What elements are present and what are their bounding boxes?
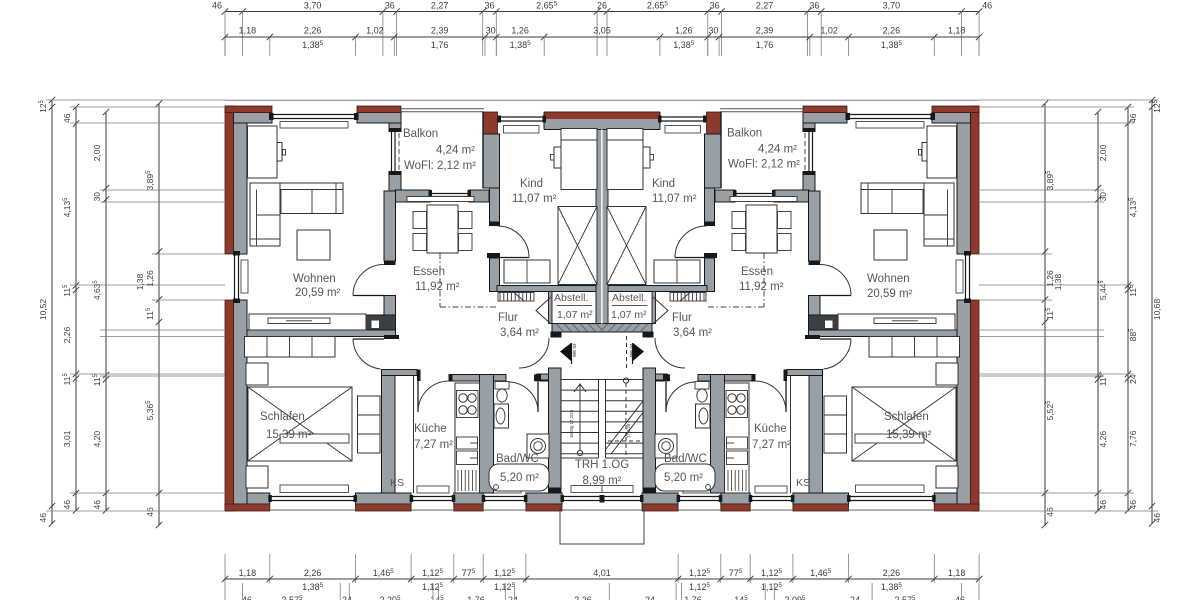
svg-text:20,59 m²: 20,59 m² <box>867 288 913 300</box>
svg-text:2,00: 2,00 <box>1098 144 1108 161</box>
svg-text:1,76: 1,76 <box>431 40 449 50</box>
svg-text:4,24 m²: 4,24 m² <box>758 144 797 156</box>
svg-text:Essen: Essen <box>413 266 445 278</box>
svg-text:Flur: Flur <box>498 312 518 324</box>
svg-text:2,26: 2,26 <box>883 568 901 578</box>
svg-text:30: 30 <box>1098 192 1108 202</box>
svg-text:Kind: Kind <box>652 178 675 190</box>
svg-text:Wohnen: Wohnen <box>867 273 910 285</box>
svg-text:36: 36 <box>710 1 720 11</box>
svg-text:145: 145 <box>430 595 444 600</box>
svg-text:2,27: 2,27 <box>431 1 449 11</box>
svg-text:4,24 m²: 4,24 m² <box>436 145 475 157</box>
svg-text:2,205: 2,205 <box>379 595 401 600</box>
svg-text:1,02: 1,02 <box>820 26 838 36</box>
svg-text:2,26: 2,26 <box>304 568 322 578</box>
svg-text:Schlafen: Schlafen <box>260 411 305 423</box>
svg-text:10,68: 10,68 <box>1152 299 1162 321</box>
svg-text:3,70: 3,70 <box>883 1 901 11</box>
svg-text:2,26: 2,26 <box>574 595 592 600</box>
svg-text:2,26: 2,26 <box>304 26 322 36</box>
svg-text:1,38: 1,38 <box>135 273 145 290</box>
svg-text:WoFl: 2,12 m²: WoFl: 2,12 m² <box>728 159 800 171</box>
svg-text:46: 46 <box>982 1 992 11</box>
svg-text:1,26: 1,26 <box>145 270 155 287</box>
svg-text:2,27: 2,27 <box>756 1 774 11</box>
svg-text:2,26: 2,26 <box>62 326 72 343</box>
svg-text:2,575: 2,575 <box>281 595 303 600</box>
svg-text:Abstell.: Abstell. <box>612 292 646 304</box>
svg-text:4,20: 4,20 <box>92 431 102 448</box>
svg-text:24: 24 <box>508 595 518 600</box>
svg-text:46: 46 <box>1128 500 1138 510</box>
svg-text:24: 24 <box>645 595 655 600</box>
svg-text:1,07 m²: 1,07 m² <box>611 309 647 321</box>
svg-text:7,27 m²: 7,27 m² <box>414 439 453 451</box>
svg-text:3,64 m²: 3,64 m² <box>673 327 712 339</box>
svg-text:46: 46 <box>1098 500 1108 510</box>
svg-text:1,02: 1,02 <box>366 26 384 36</box>
svg-text:46: 46 <box>1045 507 1055 517</box>
svg-text:24: 24 <box>850 595 860 600</box>
svg-text:1,26: 1,26 <box>511 26 529 36</box>
svg-text:18 Stg 17,2/28: 18 Stg 17,2/28 <box>569 409 574 438</box>
svg-text:3,70: 3,70 <box>304 1 322 11</box>
svg-text:KS: KS <box>390 477 404 489</box>
svg-text:4,26: 4,26 <box>1098 431 1108 448</box>
svg-text:46: 46 <box>62 500 72 510</box>
svg-text:36: 36 <box>809 1 819 11</box>
svg-text:Bad/WC: Bad/WC <box>664 453 707 465</box>
svg-text:Essen: Essen <box>741 266 773 278</box>
svg-text:46: 46 <box>38 513 48 523</box>
svg-text:20,59 m²: 20,59 m² <box>295 287 341 299</box>
svg-text:46: 46 <box>955 595 965 600</box>
svg-text:145: 145 <box>734 595 748 600</box>
svg-text:Abstell.: Abstell. <box>554 292 588 304</box>
svg-text:46: 46 <box>1128 113 1138 123</box>
svg-text:46: 46 <box>242 595 252 600</box>
svg-text:17,2/28: 17,2/28 <box>626 423 631 438</box>
svg-text:WE 04: WE 04 <box>629 343 634 357</box>
svg-text:11,92 m²: 11,92 m² <box>739 281 784 293</box>
svg-text:2,26: 2,26 <box>883 26 901 36</box>
svg-text:46: 46 <box>62 113 72 123</box>
svg-text:1,26: 1,26 <box>675 26 693 36</box>
svg-text:2,39: 2,39 <box>431 26 449 36</box>
svg-text:26: 26 <box>597 1 607 11</box>
svg-text:1,38: 1,38 <box>1053 273 1063 290</box>
svg-text:15,39 m²: 15,39 m² <box>886 429 932 441</box>
svg-text:1,76: 1,76 <box>684 595 702 600</box>
svg-text:3,05: 3,05 <box>593 26 611 36</box>
svg-text:10,52: 10,52 <box>38 299 48 321</box>
svg-text:1,07 m²: 1,07 m² <box>557 309 593 321</box>
svg-text:5,20 m²: 5,20 m² <box>500 472 539 484</box>
svg-text:1,18: 1,18 <box>948 26 966 36</box>
svg-text:5,20 m²: 5,20 m² <box>664 472 703 484</box>
svg-text:3,01: 3,01 <box>62 430 72 447</box>
svg-text:8,99 m²: 8,99 m² <box>583 475 622 487</box>
svg-text:2,39: 2,39 <box>756 26 774 36</box>
svg-text:30: 30 <box>708 26 718 36</box>
svg-text:24: 24 <box>342 595 352 600</box>
svg-text:WE 03: WE 03 <box>572 343 577 357</box>
svg-text:30: 30 <box>486 26 496 36</box>
svg-text:Bad/WC: Bad/WC <box>496 453 539 465</box>
svg-text:2,00: 2,00 <box>92 144 102 161</box>
svg-text:TRH 1.OG: TRH 1.OG <box>575 459 629 471</box>
svg-text:7,76: 7,76 <box>1128 430 1138 447</box>
svg-text:11,07 m²: 11,07 m² <box>652 193 697 205</box>
svg-text:11,07 m²: 11,07 m² <box>512 193 557 205</box>
svg-text:2,575: 2,575 <box>894 595 916 600</box>
svg-text:Balkon: Balkon <box>403 128 438 140</box>
svg-text:46: 46 <box>1152 513 1162 523</box>
svg-text:1,18: 1,18 <box>239 568 257 578</box>
svg-text:1,76: 1,76 <box>756 40 774 50</box>
svg-text:KS: KS <box>796 477 810 489</box>
svg-text:1,18: 1,18 <box>239 26 257 36</box>
svg-text:15,39 m²: 15,39 m² <box>266 429 312 441</box>
svg-text:46: 46 <box>92 500 102 510</box>
svg-text:36: 36 <box>385 1 395 11</box>
svg-text:Flur: Flur <box>672 312 692 324</box>
svg-text:Küche: Küche <box>754 423 787 435</box>
svg-text:7,27 m²: 7,27 m² <box>752 439 791 451</box>
svg-text:11,92 m²: 11,92 m² <box>415 281 460 293</box>
svg-text:Balkon: Balkon <box>727 128 762 140</box>
svg-text:1,76: 1,76 <box>467 595 485 600</box>
svg-text:24: 24 <box>1128 374 1138 384</box>
svg-text:1,18: 1,18 <box>948 568 966 578</box>
svg-text:3,64 m²: 3,64 m² <box>500 327 539 339</box>
svg-text:Küche: Küche <box>414 423 447 435</box>
svg-text:4,01: 4,01 <box>593 568 611 578</box>
svg-text:2,095: 2,095 <box>784 595 806 600</box>
svg-text:WoFl: 2,12 m²: WoFl: 2,12 m² <box>404 160 476 172</box>
svg-text:Kind: Kind <box>520 178 543 190</box>
svg-text:30: 30 <box>92 192 102 202</box>
svg-text:36: 36 <box>484 1 494 11</box>
svg-text:Wohnen: Wohnen <box>293 273 336 285</box>
svg-text:Schlafen: Schlafen <box>884 411 929 423</box>
svg-text:46: 46 <box>212 1 222 11</box>
svg-text:46: 46 <box>145 507 155 517</box>
